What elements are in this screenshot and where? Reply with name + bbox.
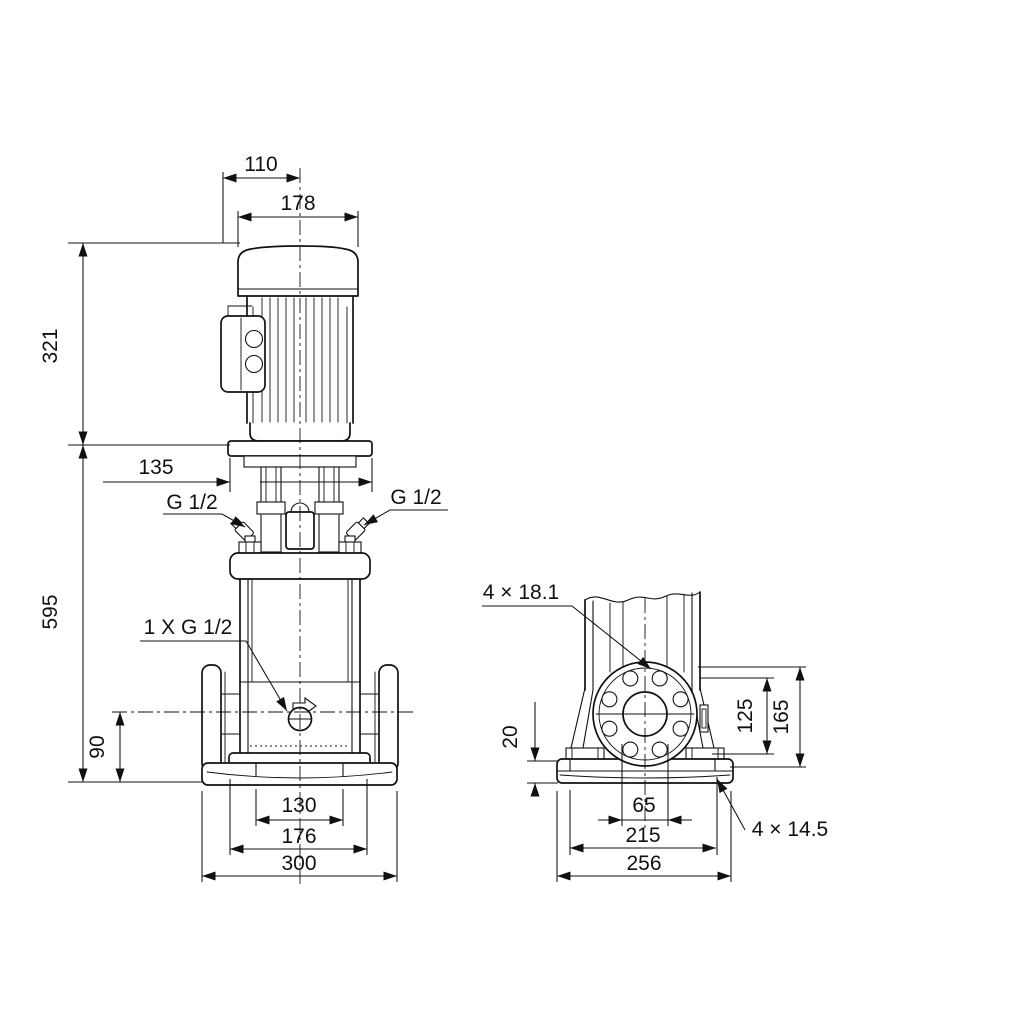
drawing-canvas: 110 178 321 135 595 90 130 176 300 G 1/2…	[0, 0, 1024, 1024]
leader-vent-right	[364, 510, 448, 525]
vent-label-left: G 1/2	[166, 491, 217, 514]
dim-label-135: 135	[138, 456, 173, 479]
vent-label-right: G 1/2	[390, 486, 441, 509]
dim-label-321: 321	[39, 328, 62, 363]
hex-nut-right	[339, 542, 361, 553]
pump-dimensional-drawing: 110 178 321 135 595 90 130 176 300 G 1/2…	[0, 0, 1024, 1024]
dim-label-595: 595	[39, 594, 62, 629]
front-view: 110 178 321 135 595 90 130 176 300 G 1/2…	[39, 153, 448, 884]
dim-label-65: 65	[632, 794, 655, 817]
dim-label-90: 90	[86, 735, 109, 758]
flange-holes-label: 4 × 18.1	[483, 581, 559, 604]
cable-entry-hole	[246, 331, 263, 348]
hex-nut-left	[239, 542, 261, 553]
dim-label-110: 110	[244, 153, 277, 176]
drain-label: 1 X G 1/2	[144, 616, 233, 639]
break-line	[585, 592, 700, 602]
dim-label-300: 300	[281, 852, 316, 875]
fan-cover	[238, 246, 358, 296]
dim-label-256: 256	[626, 852, 661, 875]
dim-label-20: 20	[499, 725, 522, 748]
dim-label-215: 215	[625, 824, 660, 847]
dim-label-125: 125	[734, 698, 757, 733]
dim-label-130: 130	[281, 794, 316, 817]
dim-label-176: 176	[281, 825, 316, 848]
dim-label-165: 165	[770, 699, 793, 734]
flange-tab	[700, 705, 708, 732]
dim-label-178: 178	[280, 192, 315, 215]
base-plate-front	[202, 763, 397, 785]
base-holes-label: 4 × 14.5	[752, 818, 828, 841]
terminal-box	[221, 306, 265, 392]
side-view: 4 × 18.1 20 125 165 65 215 256 4 × 14.5	[482, 581, 828, 882]
cable-entry-hole	[246, 356, 263, 373]
leader-flange-holes	[482, 606, 651, 669]
